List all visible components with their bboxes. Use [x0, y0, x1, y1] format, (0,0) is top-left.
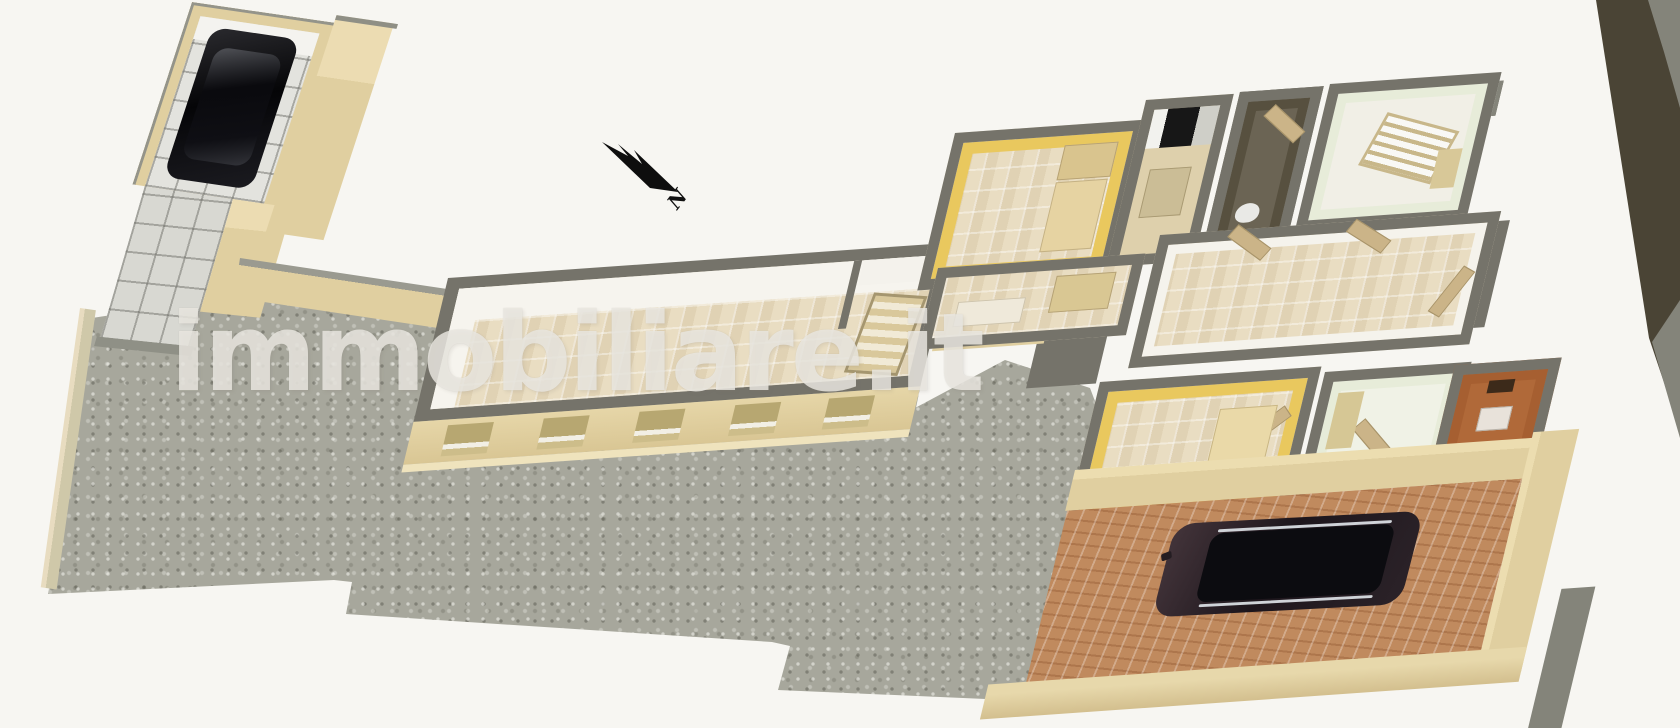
watermark: immobiliare.it [170, 300, 1370, 440]
bed [1039, 179, 1108, 253]
driveway-grey-post [1527, 586, 1596, 728]
north-arrow-icon [602, 142, 678, 192]
driveway-car [1152, 511, 1424, 618]
living-room-door-1 [1227, 224, 1271, 261]
driveway-car-glass [1195, 523, 1397, 602]
orange-wall-cabinet [1486, 379, 1515, 393]
living-room-door-2 [1346, 219, 1392, 254]
sink [1475, 406, 1513, 432]
laundry-room-green [1295, 72, 1502, 232]
floor-plan-render: N immobiliare.it [0, 0, 1680, 728]
wardrobe [1056, 142, 1118, 181]
kitchen-island [1138, 167, 1192, 219]
kitchen-counter [1145, 105, 1220, 149]
bathroom-olive-door [1263, 104, 1305, 143]
brick-driveway [1000, 427, 1680, 728]
garage [118, 2, 442, 266]
north-arrow: N [598, 142, 693, 227]
living-room-door-3 [1428, 266, 1476, 318]
toilet [1233, 202, 1262, 223]
